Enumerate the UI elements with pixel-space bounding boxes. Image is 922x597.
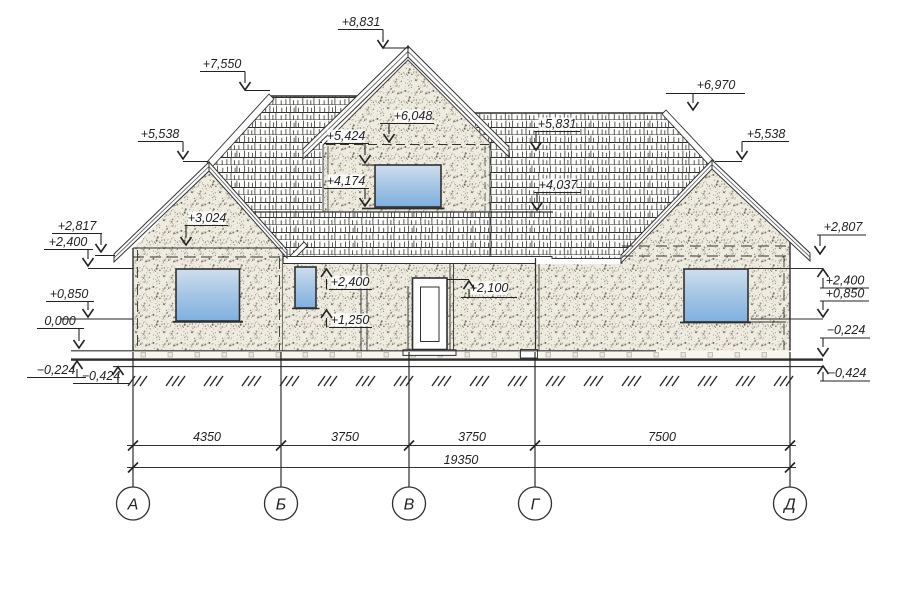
svg-text:−0,224: −0,224 bbox=[827, 323, 866, 337]
svg-text:+2,400: +2,400 bbox=[826, 274, 865, 288]
svg-text:+8,831: +8,831 bbox=[342, 15, 381, 29]
svg-text:+4,037: +4,037 bbox=[539, 178, 579, 192]
svg-text:+7,550: +7,550 bbox=[203, 57, 242, 71]
svg-text:+2,400: +2,400 bbox=[331, 275, 370, 289]
svg-text:+2,807: +2,807 bbox=[824, 220, 864, 234]
svg-text:А: А bbox=[127, 497, 139, 514]
svg-text:7500: 7500 bbox=[648, 430, 676, 444]
svg-text:3750: 3750 bbox=[458, 430, 486, 444]
svg-text:В: В bbox=[404, 497, 415, 514]
svg-text:+2,400: +2,400 bbox=[49, 235, 88, 249]
svg-text:0,000: 0,000 bbox=[44, 314, 75, 328]
svg-text:+5,831: +5,831 bbox=[538, 117, 577, 131]
svg-text:+5,424: +5,424 bbox=[327, 129, 366, 143]
svg-text:Д: Д bbox=[782, 497, 795, 514]
svg-text:+5,538: +5,538 bbox=[747, 127, 786, 141]
svg-text:+2,100: +2,100 bbox=[470, 281, 509, 295]
svg-text:−0,224: −0,224 bbox=[37, 363, 76, 377]
svg-text:3750: 3750 bbox=[331, 430, 359, 444]
svg-text:+2,817: +2,817 bbox=[58, 219, 98, 233]
svg-text:+4,174: +4,174 bbox=[327, 174, 366, 188]
svg-text:+3,024: +3,024 bbox=[188, 211, 227, 225]
svg-text:+0,850: +0,850 bbox=[50, 287, 89, 301]
svg-text:+1,250: +1,250 bbox=[331, 313, 370, 327]
svg-text:+6,048: +6,048 bbox=[394, 109, 433, 123]
svg-text:−0,424: −0,424 bbox=[828, 366, 867, 380]
svg-text:Б: Б bbox=[276, 497, 286, 514]
svg-text:+5,538: +5,538 bbox=[141, 127, 180, 141]
svg-text:19350: 19350 bbox=[444, 453, 479, 467]
svg-text:4350: 4350 bbox=[193, 430, 221, 444]
svg-text:+0,850: +0,850 bbox=[826, 287, 865, 301]
svg-text:+6,970: +6,970 bbox=[697, 78, 736, 92]
svg-text:Г: Г bbox=[531, 497, 541, 514]
